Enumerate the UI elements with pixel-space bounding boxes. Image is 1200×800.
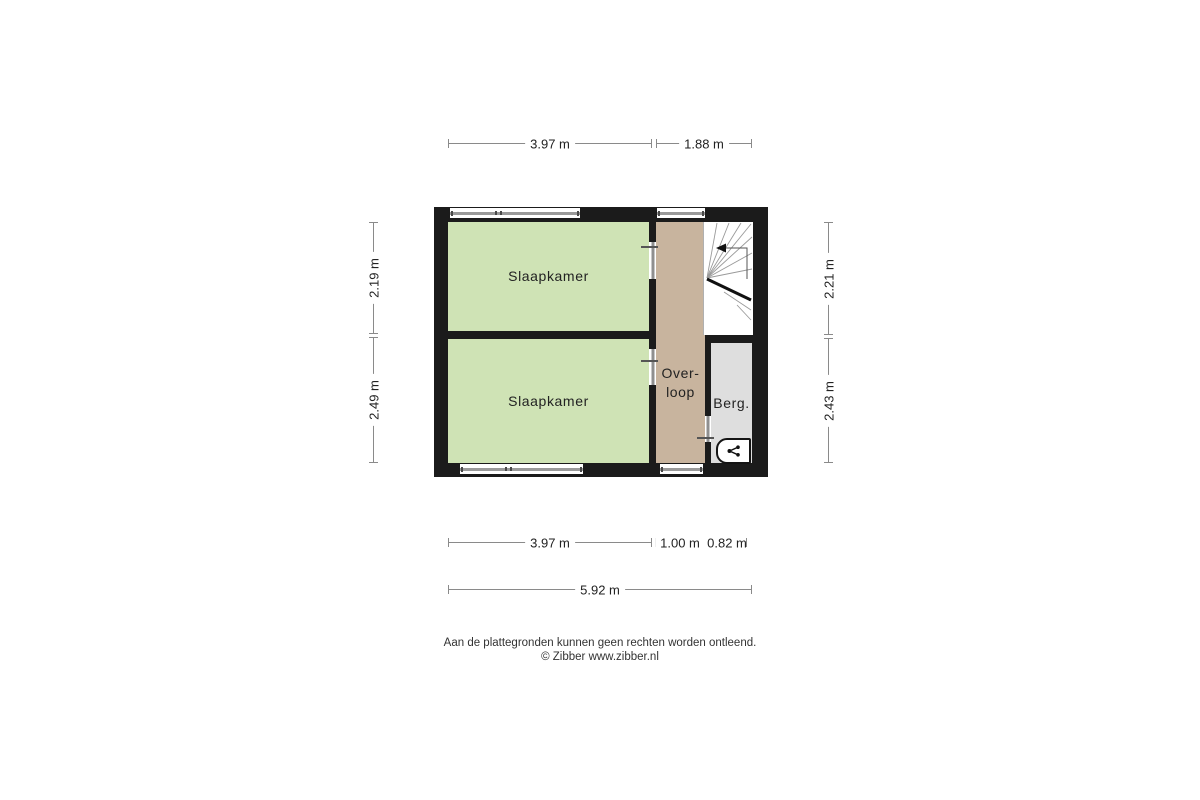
dimension-bottom-right: 0.82 m bbox=[707, 542, 747, 543]
dimension-label: 0.82 m bbox=[702, 536, 752, 551]
window bbox=[657, 208, 705, 218]
dimension-label: 2.49 m bbox=[367, 374, 382, 426]
window bbox=[450, 208, 580, 218]
room-overloop: Over- loop bbox=[656, 222, 705, 463]
dimension-label: 1.88 m bbox=[679, 137, 729, 152]
dimension-label: 2.43 m bbox=[822, 375, 837, 427]
overloop-line2: loop bbox=[666, 384, 695, 400]
door-slaapkamer-2 bbox=[649, 349, 656, 385]
dimension-label: 3.97 m bbox=[525, 137, 575, 152]
dimension-label: 3.97 m bbox=[525, 536, 575, 551]
window-mullion-tick bbox=[495, 211, 497, 215]
dimension-top-left: 3.97 m bbox=[448, 143, 652, 144]
window-mullion-tick bbox=[505, 467, 507, 471]
dimension-total-width: 5.92 m bbox=[448, 589, 752, 590]
door-tick bbox=[641, 246, 658, 248]
staircase-icon bbox=[704, 222, 753, 335]
dimension-bottom-middle: 1.00 m bbox=[655, 542, 705, 543]
dimension-right-upper: 2.21 m bbox=[828, 222, 829, 335]
room-label-overloop: Over- loop bbox=[662, 364, 700, 402]
dimension-label: 2.21 m bbox=[822, 253, 837, 305]
window bbox=[460, 464, 583, 474]
door-tick bbox=[697, 437, 714, 439]
footer-disclaimer: Aan de plattegronden kunnen geen rechten… bbox=[0, 636, 1200, 650]
ventilation-unit bbox=[716, 438, 751, 464]
window-mullion-tick bbox=[500, 211, 502, 215]
dimension-bottom-left: 3.97 m bbox=[448, 542, 652, 543]
room-label-slaapkamer-2: Slaapkamer bbox=[508, 392, 589, 411]
dimension-label: 1.00 m bbox=[655, 536, 705, 551]
footer-copyright: © Zibber www.zibber.nl bbox=[0, 650, 1200, 664]
mechanical-ventilation-icon bbox=[727, 445, 741, 457]
dimension-right-lower: 2.43 m bbox=[828, 338, 829, 463]
dimension-left-upper: 2.19 m bbox=[373, 222, 374, 334]
room-label-berging: Berg. bbox=[713, 394, 749, 413]
door-tick bbox=[641, 360, 658, 362]
footer: Aan de plattegronden kunnen geen rechten… bbox=[0, 636, 1200, 664]
room-slaapkamer-2: Slaapkamer bbox=[448, 339, 649, 463]
overloop-line1: Over- bbox=[662, 365, 700, 381]
room-slaapkamer-1: Slaapkamer bbox=[448, 222, 649, 331]
window-mullion-tick bbox=[510, 467, 512, 471]
dimension-label: 2.19 m bbox=[367, 252, 382, 304]
dimension-label: 5.92 m bbox=[575, 583, 625, 598]
window bbox=[660, 464, 703, 474]
dimension-left-lower: 2.49 m bbox=[373, 337, 374, 463]
room-label-slaapkamer-1: Slaapkamer bbox=[508, 267, 589, 286]
floor-plan-canvas: Slaapkamer Slaapkamer Over- loop bbox=[0, 0, 1200, 800]
staircase bbox=[703, 222, 753, 335]
dimension-top-right: 1.88 m bbox=[656, 143, 752, 144]
